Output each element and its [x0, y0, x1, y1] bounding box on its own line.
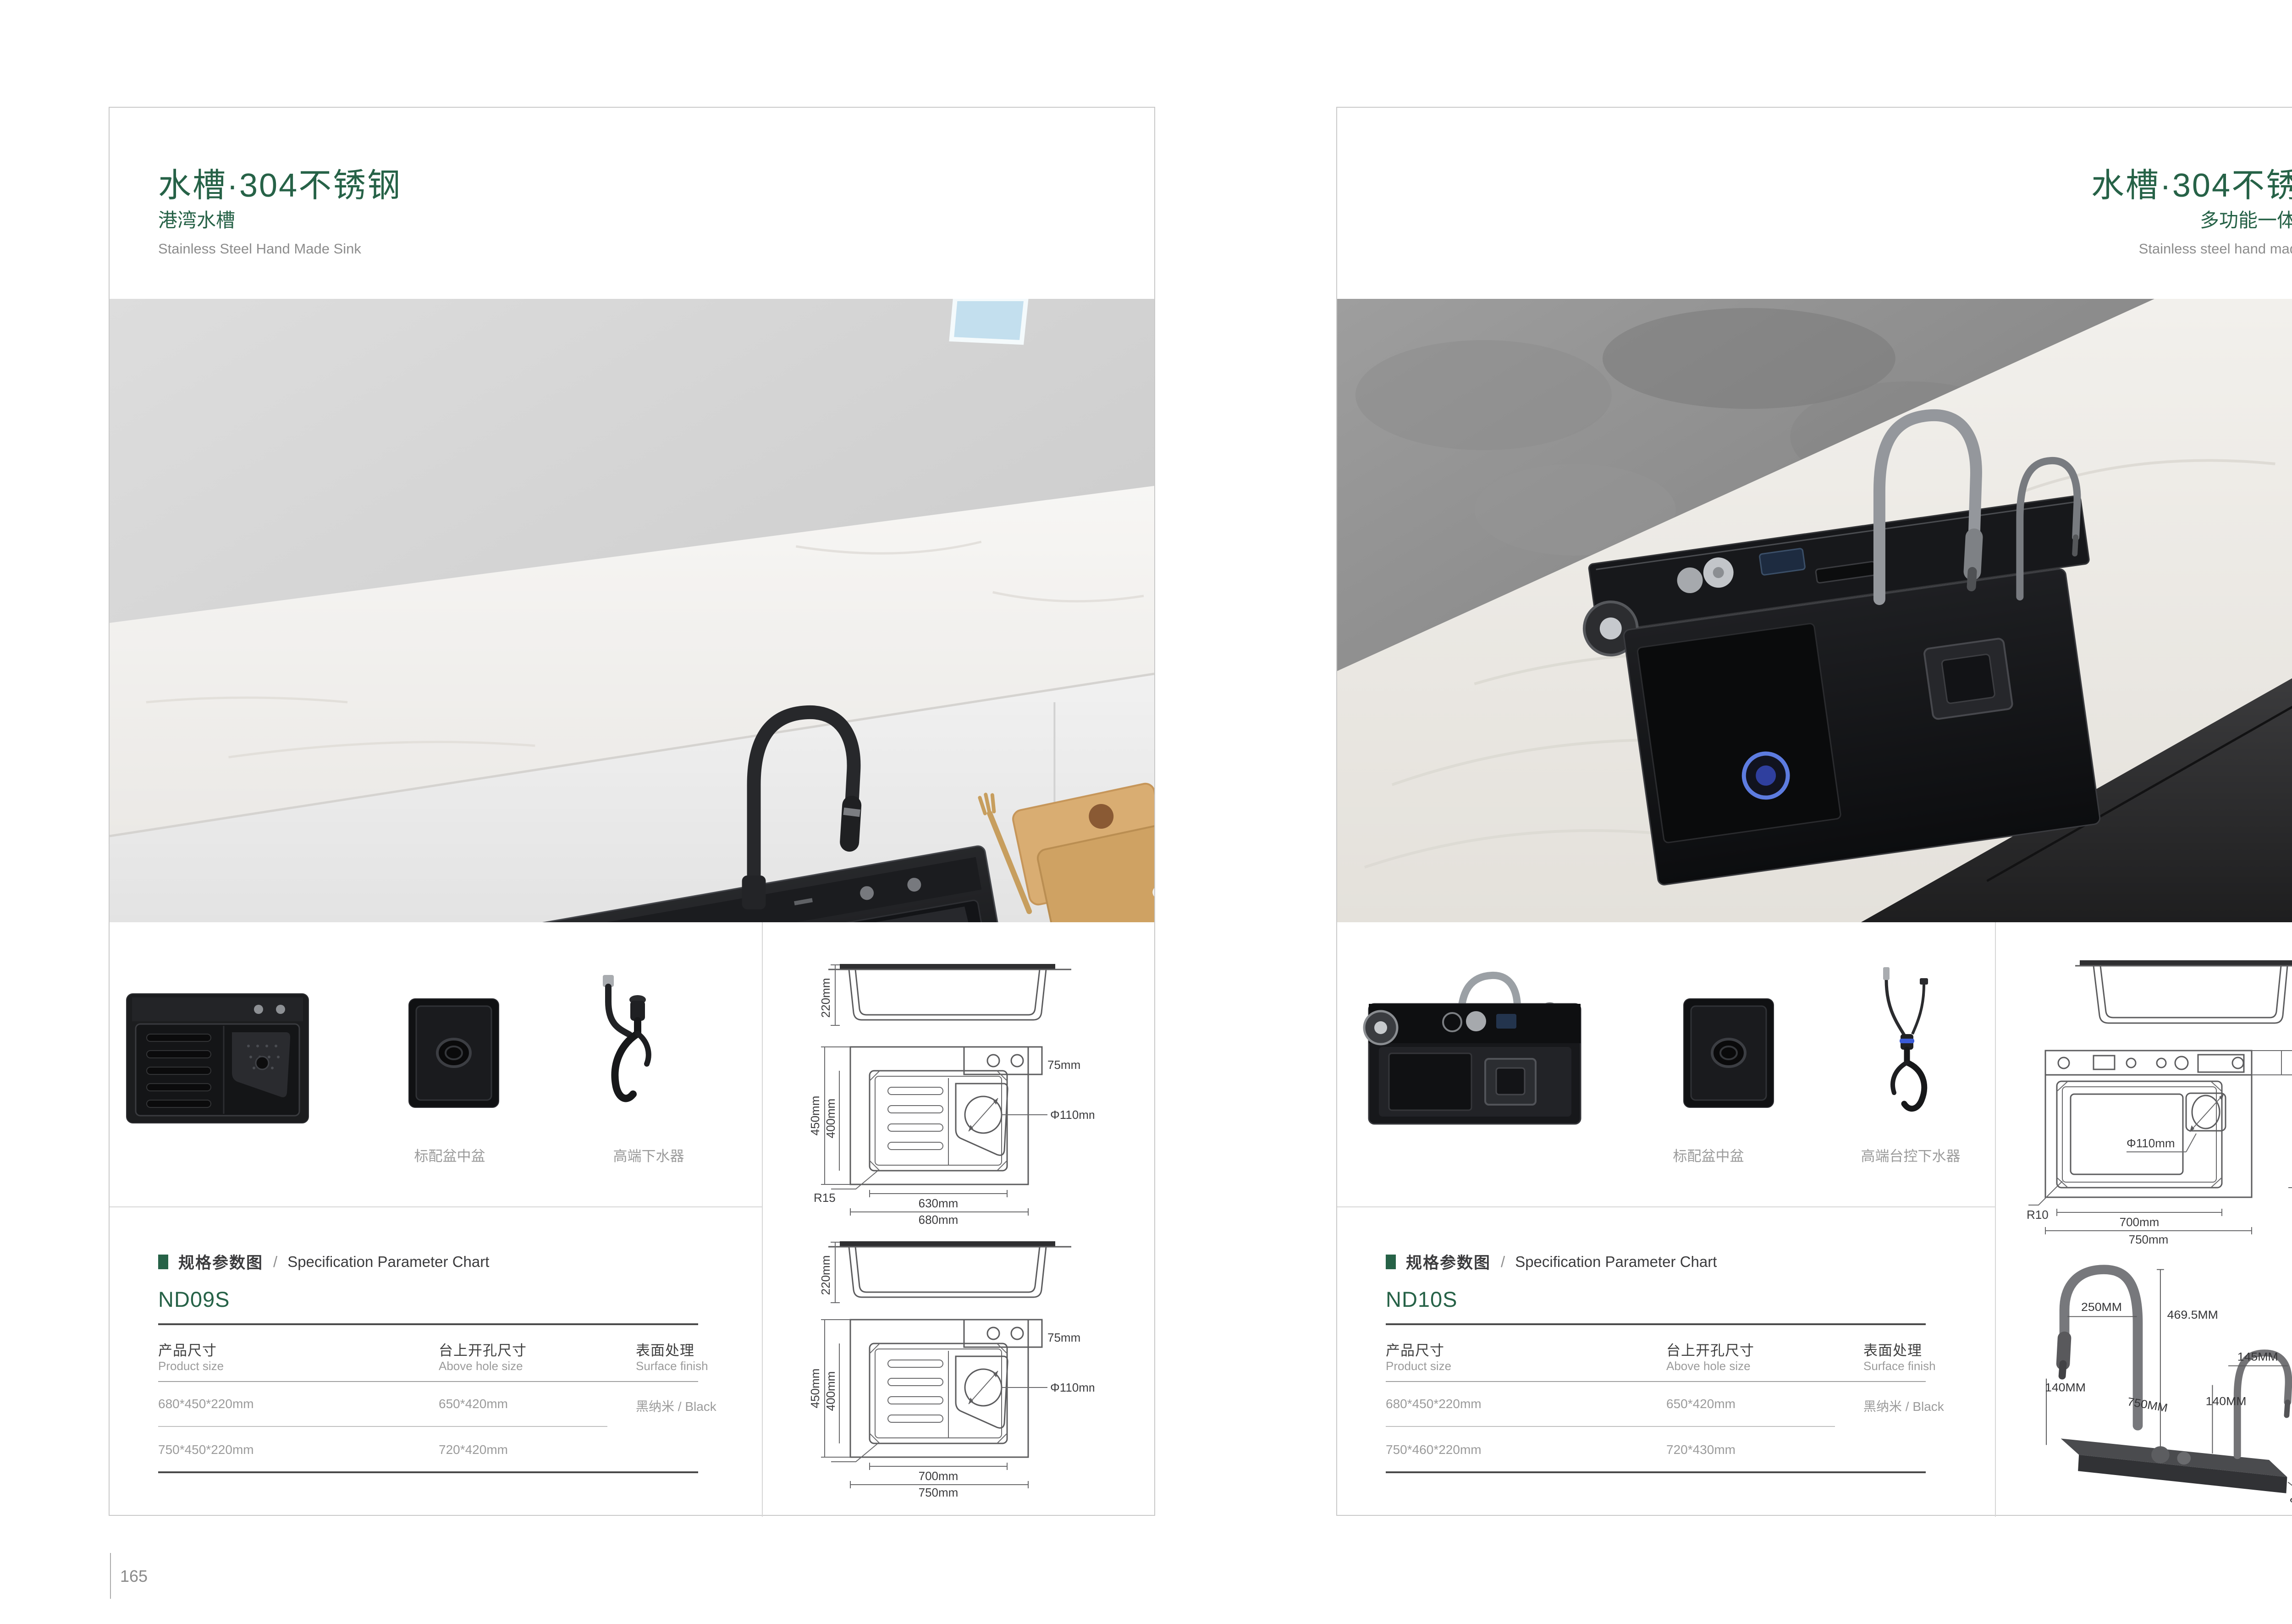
main-photo-left: [110, 299, 1154, 922]
dim-width-outer: 750mm: [919, 1486, 959, 1497]
main-photo-right: [1337, 299, 2292, 922]
footer-rule-left: [110, 1553, 111, 1599]
dim-drain: Φ110mm: [1050, 1108, 1094, 1122]
drawing-side-view: 220mm: [2073, 957, 2292, 1032]
drawing-side-view-680: 220mm: [821, 961, 1078, 1030]
caption-drain: 高端下水器: [613, 1145, 684, 1165]
page-subtitle-en: Stainless Steel Hand Made Sink: [158, 241, 361, 257]
dim-clearance: 140MM: [2045, 1382, 2086, 1394]
col2-header-cn: 台上开孔尺寸: [1666, 1339, 1754, 1360]
drawing-side-view-750: 220mm: [821, 1239, 1078, 1307]
page-title: 水槽·304不锈钢: [158, 158, 402, 206]
section-title-en: Specification Parameter Chart: [287, 1253, 489, 1271]
dim-depth-inner: 400mm: [824, 1371, 837, 1411]
tall-faucet-tip: [2062, 1364, 2063, 1376]
section-bullet-icon: [1386, 1255, 1396, 1269]
dim-height: 220mm: [821, 978, 832, 1018]
page-right: 水槽·304不锈钢 多功能一体水槽 Stainless steel hand m…: [1336, 107, 2292, 1516]
col2-header-cn: 台上开孔尺寸: [439, 1339, 527, 1360]
table-rule-row: [1386, 1426, 1835, 1427]
col3-header-cn: 表面处理: [636, 1339, 694, 1360]
table-rule-header: [1386, 1381, 1926, 1382]
spec-section-header: 规格参数图 / Specification Parameter Chart: [158, 1250, 489, 1273]
dim-radius: R10: [2027, 1208, 2049, 1222]
col3-header-en: Surface finish: [636, 1359, 708, 1373]
col2-header-en: Above hole size: [1666, 1359, 1751, 1373]
row1-product-size: 680*450*220mm: [158, 1397, 254, 1411]
thumb-drain-kit: [595, 974, 655, 1112]
section-divider: [1337, 1206, 1995, 1207]
tall-faucet-sprayer: [2063, 1338, 2065, 1364]
deck-features: [2058, 1055, 2244, 1072]
column-divider: [1995, 922, 1996, 1517]
dim-drain: Φ110mm: [2127, 1136, 2175, 1150]
page-subtitle: 港湾水槽: [158, 205, 235, 233]
thumb-inner-basin: [407, 997, 501, 1109]
section-divider: [110, 1206, 762, 1207]
col3-header-cn: 表面处理: [1863, 1339, 1922, 1360]
thumb-sink-with-faucet: [1362, 963, 1587, 1126]
thumb-drain-kit-controlled: [1872, 966, 1936, 1115]
row2-hole-size: 720*430mm: [1666, 1442, 1736, 1457]
photo-left-illustration: [110, 299, 1154, 922]
dim-base-length: 750MM: [2126, 1396, 2169, 1415]
row2-product-size: 750*460*220mm: [1386, 1442, 1482, 1457]
multifunction-sink: [1575, 495, 2126, 891]
plan-slots: [888, 1087, 943, 1150]
plan-slots: [888, 1360, 943, 1422]
page-number-left: 165: [120, 1567, 148, 1586]
row1-finish: 黑纳米 / Black: [636, 1397, 716, 1415]
dim-radius: R15: [814, 1191, 836, 1205]
col1-header-cn: 产品尺寸: [158, 1339, 217, 1360]
dim-depth-inner: 400mm: [824, 1099, 837, 1139]
window: [952, 299, 1026, 342]
drawing-plan-view: Φ110mm 80mm 355mm 460mm R10 700mm 750mm: [2025, 1044, 2292, 1245]
dim-width-inner: 700mm: [2120, 1215, 2160, 1229]
row2-hole-size: 720*420mm: [439, 1442, 508, 1457]
col1-header-en: Product size: [158, 1359, 224, 1373]
row1-product-size: 680*450*220mm: [1386, 1397, 1482, 1411]
model-number: ND10S: [1386, 1287, 1458, 1312]
dim-deck: 75mm: [1047, 1058, 1080, 1072]
drawing-plan-view-750: Φ110mm 75mm 450mm 400mm 700mm 750mm: [801, 1314, 1094, 1497]
section-bullet-icon: [158, 1255, 168, 1269]
page-title: 水槽·304不锈钢: [2091, 158, 2292, 206]
section-separator: /: [1501, 1253, 1505, 1271]
table-rule-top: [1386, 1323, 1926, 1325]
photo-right-illustration: [1337, 299, 2292, 922]
drawing-faucet-dimensions: 250MM 469.5MM 140MM 750MM 145MM 140MM 22…: [2011, 1255, 2292, 1511]
table-rule-header: [158, 1381, 698, 1382]
page-left: 水槽·304不锈钢 港湾水槽 Stainless Steel Hand Made…: [109, 107, 1155, 1516]
page-subtitle-en: Stainless steel hand made sink: [2139, 241, 2292, 257]
col2-header-en: Above hole size: [439, 1359, 523, 1373]
model-number: ND09S: [158, 1287, 230, 1312]
thumb-sink-top-view: [125, 992, 310, 1125]
section-separator: /: [273, 1253, 277, 1271]
table-rule-bottom: [158, 1471, 698, 1473]
spec-section-header: 规格参数图 / Specification Parameter Chart: [1386, 1250, 1717, 1273]
page-subtitle: 多功能一体水槽: [2200, 205, 2292, 233]
dim-depth-outer: 450mm: [808, 1096, 822, 1136]
caption-basin: 标配盆中盆: [1673, 1145, 1744, 1165]
row1-hole-size: 650*420mm: [1666, 1397, 1736, 1411]
table-rule-bottom: [1386, 1471, 1926, 1473]
dim-base-depth: 80MM: [2288, 1492, 2292, 1511]
row1-finish: 黑纳米 / Black: [1863, 1397, 1944, 1415]
section-title-en: Specification Parameter Chart: [1515, 1253, 1717, 1271]
dim-width-outer: 680mm: [919, 1213, 959, 1225]
column-divider: [762, 922, 763, 1517]
small-faucet-tip: [2286, 1402, 2287, 1415]
dim-reach: 250MM: [2081, 1301, 2122, 1314]
table-rule-row: [158, 1426, 607, 1427]
row1-hole-size: 650*420mm: [439, 1397, 508, 1411]
dim-small-clearance: 140MM: [2206, 1395, 2247, 1408]
dim-width-inner: 700mm: [919, 1469, 959, 1483]
dim-height: 469.5MM: [2167, 1309, 2218, 1321]
table-rule-top: [158, 1323, 698, 1325]
dim-drain: Φ110mm: [1050, 1381, 1094, 1394]
dim-width-outer: 750mm: [2129, 1233, 2169, 1245]
caption-drain: 高端台控下水器: [1861, 1145, 1961, 1165]
drawing-plan-view-680: Φ110mm 75mm 450mm 400mm R15 630mm 680mm: [801, 1041, 1094, 1225]
catalog-spread: 水槽·304不锈钢 港湾水槽 Stainless Steel Hand Made…: [0, 0, 2292, 1624]
thumb-inner-basin: [1682, 997, 1775, 1109]
col1-header-en: Product size: [1386, 1359, 1451, 1373]
dim-height: 220mm: [821, 1255, 832, 1295]
dim-depth-outer: 450mm: [808, 1369, 822, 1409]
col3-header-en: Surface finish: [1863, 1359, 1936, 1373]
section-title-cn: 规格参数图: [1406, 1250, 1491, 1273]
dim-deck: 75mm: [1047, 1331, 1080, 1344]
tall-faucet-outline: [2065, 1270, 2138, 1426]
row2-product-size: 750*450*220mm: [158, 1442, 254, 1457]
section-title-cn: 规格参数图: [178, 1250, 263, 1273]
caption-basin: 标配盆中盆: [414, 1145, 485, 1165]
dim-small-reach: 145MM: [2237, 1351, 2278, 1363]
faucet-base: [2061, 1438, 2287, 1493]
col1-header-cn: 产品尺寸: [1386, 1339, 1444, 1360]
dim-width-inner: 630mm: [919, 1196, 959, 1210]
